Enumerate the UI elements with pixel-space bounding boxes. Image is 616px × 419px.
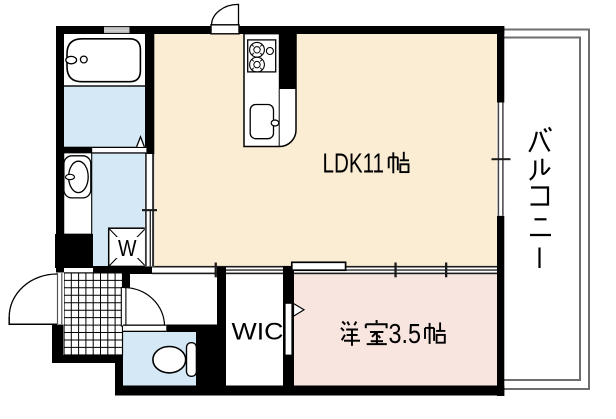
svg-text:WIC: WIC (232, 319, 284, 346)
svg-text:W: W (118, 235, 137, 261)
svg-text:3.5: 3.5 (389, 318, 422, 349)
svg-text:LDK11: LDK11 (323, 148, 385, 179)
